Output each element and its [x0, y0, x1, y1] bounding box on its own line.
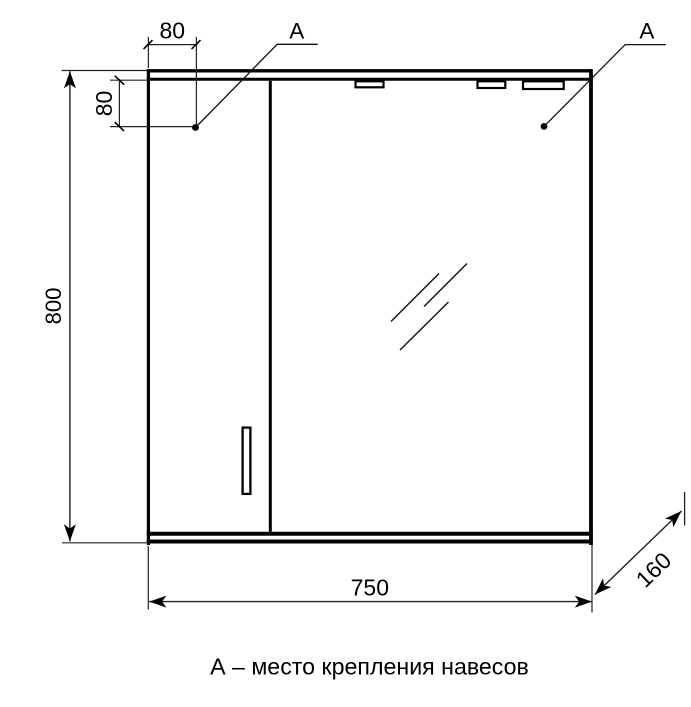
svg-text:А – место крепления навесов: А – место крепления навесов	[210, 654, 529, 680]
svg-text:80: 80	[91, 91, 117, 117]
svg-text:750: 750	[351, 575, 389, 601]
svg-text:800: 800	[41, 287, 66, 324]
svg-text:80: 80	[160, 17, 186, 43]
svg-text:A: A	[289, 18, 304, 43]
svg-text:A: A	[639, 19, 654, 44]
